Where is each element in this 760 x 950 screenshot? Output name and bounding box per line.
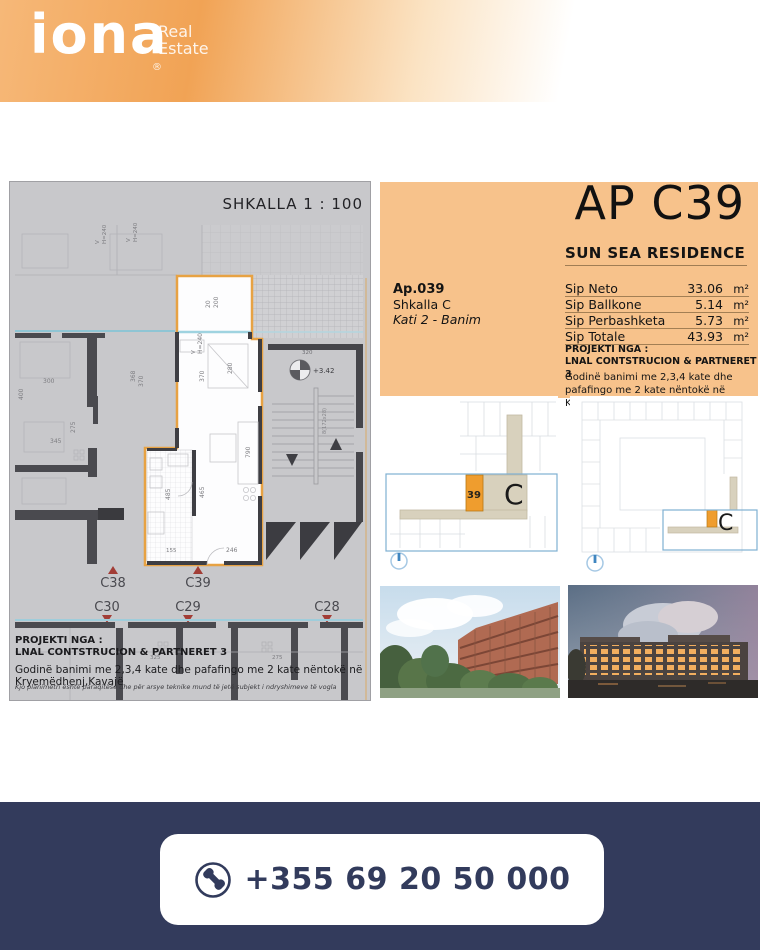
location-diagram-site: C [570, 396, 758, 574]
apartment-code: AP C39 [575, 176, 745, 230]
north-compass-icon [391, 553, 407, 569]
render-dusk-svg [568, 585, 758, 698]
area-row: Sip Ballkone 5.14 m² [565, 297, 749, 313]
svg-text:H=240: H=240 [133, 222, 139, 242]
plan-scale-label: SHKALLA 1 : 100 [223, 195, 364, 213]
block-c-label-small: C [718, 511, 733, 536]
staircase-diagram-svg: 39 C [380, 396, 558, 572]
registered-mark: ® [152, 62, 162, 73]
area-unit: m² [723, 282, 749, 296]
area-row: Sip Perbashketa 5.73 m² [565, 313, 749, 329]
site-diagram-svg: C [570, 396, 758, 574]
svg-text:465: 465 [199, 486, 206, 498]
svg-text:370: 370 [199, 370, 206, 382]
area-row: Sip Neto 33.06 m² [565, 281, 749, 297]
unit-39-label: 39 [467, 490, 481, 501]
svg-text:200: 200 [213, 296, 220, 308]
area-value: 43.93 [687, 330, 723, 344]
area-label: Sip Totale [565, 330, 687, 344]
area-unit: m² [723, 330, 749, 344]
area-value: 33.06 [687, 282, 723, 296]
svg-text:8(172x28): 8(172x28) [322, 408, 328, 434]
plan-project-name: LNAL CONTSTRUCION & PARTNERET 3 [15, 647, 227, 658]
svg-text:V: V [126, 238, 132, 242]
svg-text:280: 280 [227, 362, 234, 374]
svg-text:C29: C29 [175, 600, 201, 615]
svg-text:370: 370 [138, 375, 145, 387]
svg-text:155: 155 [166, 548, 177, 554]
brand-subtitle-line2: Estate [158, 41, 209, 58]
header-banner: iona ® Real Estate [0, 0, 760, 102]
svg-text:20: 20 [205, 300, 212, 308]
brand-logo: iona [30, 8, 169, 62]
area-unit: m² [723, 314, 749, 328]
svg-text:246: 246 [226, 547, 238, 554]
svg-text:790: 790 [245, 446, 252, 458]
area-unit: m² [723, 298, 749, 312]
bath-kitchen-floor [147, 450, 192, 562]
svg-text:H=240: H=240 [197, 333, 204, 354]
highlighted-unit-small [707, 510, 717, 527]
floor-use-label: Kati 2 - Banim [393, 312, 481, 327]
plan-project-label: PROJEKTI NGA : [15, 635, 103, 646]
svg-text:H=240: H=240 [102, 224, 108, 244]
svg-text:345: 345 [50, 438, 62, 445]
phone-icon [194, 861, 232, 899]
staircase-label: Shkalla C [393, 297, 481, 312]
svg-text:368: 368 [130, 370, 137, 382]
ground-dusk [568, 680, 758, 698]
svg-text:275: 275 [272, 655, 283, 661]
area-row: Sip Totale 43.93 m² [565, 329, 749, 345]
apartment-id-block: Ap.039 Shkalla C Kati 2 - Banim [393, 282, 481, 327]
floor-plan-panel: SHKALLA 1 : 100 [10, 182, 370, 700]
svg-text:C30: C30 [94, 600, 120, 615]
svg-text:C38: C38 [100, 576, 126, 591]
area-label: Sip Neto [565, 282, 687, 296]
apartment-number: Ap.039 [393, 282, 481, 297]
svg-text:300: 300 [43, 378, 55, 385]
area-value: 5.73 [695, 314, 723, 328]
svg-text:485: 485 [165, 488, 172, 500]
north-compass-icon [587, 555, 603, 571]
area-value: 5.14 [695, 298, 723, 312]
render-day-svg [380, 586, 560, 698]
plan-disclaimer: Kjo planimetri është paraqitëse dhe për … [15, 683, 337, 691]
building-render-dusk [568, 585, 758, 698]
phone-contact-button[interactable]: +355 69 20 50 000 [160, 834, 604, 925]
residence-name: SUN SEA RESIDENCE [565, 244, 747, 266]
area-label: Sip Perbashketa [565, 314, 695, 328]
svg-text:V: V [95, 240, 101, 244]
area-table: Sip Neto 33.06 m² Sip Ballkone 5.14 m² S… [565, 281, 749, 345]
project-label: PROJEKTI NGA : [565, 344, 758, 356]
brand-subtitle: Real Estate [158, 24, 209, 58]
contact-band: +355 69 20 50 000 [0, 802, 760, 950]
building-dusk [568, 635, 748, 685]
svg-text:C39: C39 [185, 576, 211, 591]
svg-text:320: 320 [302, 350, 313, 356]
area-label: Sip Ballkone [565, 298, 695, 312]
building-render-day [380, 586, 560, 698]
svg-text:400: 400 [18, 388, 25, 400]
location-diagram-staircase: 39 C [380, 396, 558, 572]
floor-plan-drawing: SHKALLA 1 : 100 [10, 182, 370, 700]
phone-number: +355 69 20 50 000 [245, 862, 571, 897]
svg-text:+3.42: +3.42 [313, 367, 334, 375]
block-c-label: C [504, 478, 524, 511]
svg-text:275: 275 [70, 421, 77, 433]
apartment-flyer: iona ® Real Estate SHKALLA 1 : 100 [0, 0, 760, 950]
info-panel: AP C39 SUN SEA RESIDENCE Ap.039 Shkalla … [380, 182, 758, 398]
svg-text:C28: C28 [314, 600, 340, 615]
